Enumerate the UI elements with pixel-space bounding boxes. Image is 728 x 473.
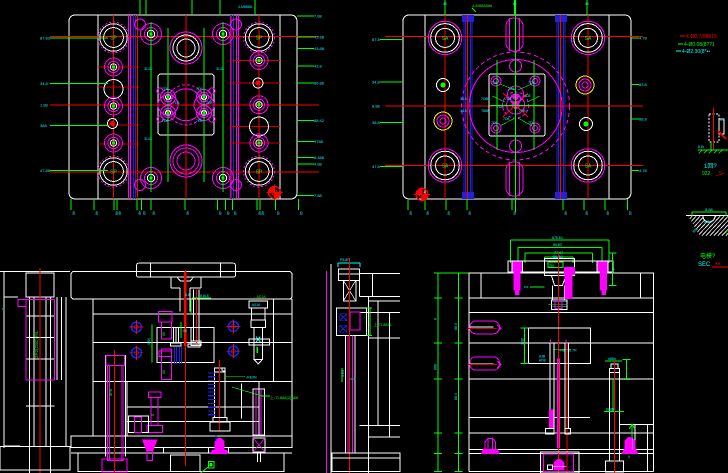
svg-text:4-Ø0.7(88915: 4-Ø0.7(88915 xyxy=(686,34,717,40)
svg-text:48: 48 xyxy=(233,211,237,215)
svg-text:8.8•: 8.8• xyxy=(698,145,705,149)
svg-text:4.8: 4.8 xyxy=(720,118,725,122)
svg-text:4.8X: 4.8X xyxy=(341,369,345,377)
svg-text:7D8: 7D8 xyxy=(505,97,511,101)
svg-text:48: 48 xyxy=(152,211,156,215)
svg-text:48: 48 xyxy=(142,211,146,215)
svg-text:7.88: 7.88 xyxy=(314,193,323,198)
svg-text:←AD1A: ←AD1A xyxy=(253,295,266,299)
svg-text:3L43: 3L43 xyxy=(144,67,152,71)
svg-text:48: 48 xyxy=(261,211,265,215)
svg-text:7D8: 7D8 xyxy=(524,94,530,98)
svg-text:7D8: 7D8 xyxy=(173,101,179,105)
svg-text:47.8: 47.8 xyxy=(372,164,381,169)
svg-text:83.8: 83.8 xyxy=(639,82,648,87)
svg-text:8: 8 xyxy=(434,318,438,320)
svg-text:48: 48 xyxy=(426,211,430,215)
svg-text:7D8: 7D8 xyxy=(196,119,202,123)
svg-text:SA: SA xyxy=(442,164,449,170)
svg-text:88: 88 xyxy=(162,332,166,336)
svg-text:48: 48 xyxy=(117,211,121,215)
svg-text:P5.8P: P5.8P xyxy=(340,258,350,262)
svg-text:48: 48 xyxy=(186,211,190,215)
svg-text:88: 88 xyxy=(183,329,187,333)
svg-text:7D8: 7D8 xyxy=(162,119,168,123)
svg-text:43.8: 43.8 xyxy=(314,64,323,69)
svg-text:4-M888888: 4-M888888 xyxy=(472,3,493,8)
svg-text:7D8: 7D8 xyxy=(503,117,509,121)
svg-text:AD8: AD8 xyxy=(539,359,546,363)
svg-text:87.83: 87.83 xyxy=(40,36,51,41)
svg-text:SA: SA xyxy=(585,36,592,42)
svg-text:1.88: 1.88 xyxy=(40,102,49,107)
svg-text:3L43: 3L43 xyxy=(216,67,224,71)
svg-text:48: 48 xyxy=(513,2,517,6)
svg-text:2P2(2SC)99L: 2P2(2SC)99L xyxy=(34,330,39,358)
svg-text:48: 48 xyxy=(409,211,413,215)
svg-text:上-7L888L: 上-7L888L xyxy=(373,321,392,327)
svg-text:85.83: 85.83 xyxy=(553,243,562,247)
svg-text:SEC: SEC xyxy=(698,262,711,268)
svg-text:87.8: 87.8 xyxy=(372,37,381,42)
svg-text:48: 48 xyxy=(276,211,280,215)
svg-text:7D8: 7D8 xyxy=(519,109,525,113)
svg-text:SP: SP xyxy=(256,170,263,176)
svg-text:8.488: 8.488 xyxy=(314,155,325,160)
svg-text:SA: SA xyxy=(585,164,592,170)
svg-text:48: 48 xyxy=(218,211,222,215)
svg-text:88.8: 88.8 xyxy=(639,117,648,122)
svg-text:9788: 9788 xyxy=(314,139,324,144)
svg-text:8: 8 xyxy=(612,268,616,270)
svg-text:A01A: A01A xyxy=(252,303,261,307)
svg-text:88: 88 xyxy=(162,370,166,374)
svg-text:4.78: 4.78 xyxy=(639,168,648,173)
svg-text:43.88: 43.88 xyxy=(314,35,325,40)
svg-text:48: 48 xyxy=(585,211,589,215)
svg-text:255: 255 xyxy=(549,264,554,268)
svg-text:7D8: 7D8 xyxy=(491,81,497,85)
svg-text:48: 48 xyxy=(137,211,141,215)
svg-text:7D8: 7D8 xyxy=(162,87,168,91)
svg-text:8P8: 8P8 xyxy=(108,388,113,396)
svg-text:34.8: 34.8 xyxy=(40,81,49,86)
svg-text:4.88: 4.88 xyxy=(314,161,323,166)
svg-text:48: 48 xyxy=(71,211,75,215)
svg-text:47.88: 47.88 xyxy=(40,168,51,173)
svg-text:48: 48 xyxy=(94,211,98,215)
svg-text:88 0: 88 0 xyxy=(454,323,458,330)
svg-text:1回?: 1回? xyxy=(704,163,717,170)
svg-text:4-Ø2.30(8*••: 4-Ø2.30(8*•• xyxy=(682,49,710,55)
svg-text:875.83: 875.83 xyxy=(552,236,563,240)
svg-text:电模?: 电模? xyxy=(700,252,716,260)
svg-text:34.8: 34.8 xyxy=(460,97,467,101)
svg-text:888: 888 xyxy=(434,364,438,370)
svg-text:48: 48 xyxy=(226,211,230,215)
svg-text:SP: SP xyxy=(110,170,117,176)
svg-text:#88#: #88# xyxy=(608,357,616,361)
svg-text:4-Ø0.08(8??1: 4-Ø0.08(8??1 xyxy=(684,42,715,48)
svg-text:480|: 480| xyxy=(147,338,151,345)
svg-text:T888: T888 xyxy=(481,109,489,113)
svg-text:4.78: 4.78 xyxy=(639,36,648,41)
svg-text:3L43: 3L43 xyxy=(144,137,152,141)
svg-text:922: 922 xyxy=(702,171,711,177)
svg-text:7D88: 7D88 xyxy=(481,97,489,101)
svg-text:8•8.8: 8•8.8 xyxy=(704,220,712,224)
svg-text:48: 48 xyxy=(606,211,610,215)
svg-text:上-7L888(2)888: 上-7L888(2)888 xyxy=(270,394,299,400)
svg-text:-RE0N: -RE0N xyxy=(246,376,257,380)
svg-text:8.8: 8.8 xyxy=(185,293,190,297)
svg-text:48: 48 xyxy=(443,2,447,6)
svg-text:388: 388 xyxy=(40,123,47,128)
svg-text:43.88: 43.88 xyxy=(314,46,325,51)
svg-text:SP: SP xyxy=(110,36,117,42)
svg-text:48: 48 xyxy=(468,211,472,215)
svg-text:86.88: 86.88 xyxy=(314,81,325,86)
svg-text:4-M8888: 4-M8888 xyxy=(238,5,252,9)
svg-text:88.42: 88.42 xyxy=(314,118,325,123)
svg-text:34.8: 34.8 xyxy=(460,109,467,113)
svg-text:7D8: 7D8 xyxy=(196,87,202,91)
svg-text:48: 48 xyxy=(299,211,303,215)
svg-text:8.8L8: 8.8L8 xyxy=(200,294,209,298)
svg-text:7D8: 7D8 xyxy=(491,121,497,125)
svg-text:8: 8 xyxy=(151,414,155,416)
svg-text:48: 48 xyxy=(585,2,589,6)
svg-text:8.88: 8.88 xyxy=(372,104,381,109)
svg-text:8: 8 xyxy=(628,455,630,459)
svg-text:48: 48 xyxy=(513,211,517,215)
svg-text:38|8: 38|8 xyxy=(521,338,525,345)
svg-text:88 4: 88 4 xyxy=(454,393,458,400)
svg-text:38.8: 38.8 xyxy=(372,120,381,125)
svg-text:SA: SA xyxy=(442,36,449,42)
svg-text:8.88: 8.88 xyxy=(705,207,714,212)
svg-text:•L••: •L•• xyxy=(350,377,356,381)
svg-text:8.8: 8.8 xyxy=(524,285,529,289)
svg-text:7D8: 7D8 xyxy=(206,101,212,105)
svg-text:SP: SP xyxy=(256,36,263,42)
svg-text:_S•: _S• xyxy=(715,171,724,177)
svg-text:34.8: 34.8 xyxy=(372,79,381,84)
svg-text:7.88: 7.88 xyxy=(314,13,323,18)
svg-text:48: 48 xyxy=(564,211,568,215)
svg-text:48: 48 xyxy=(447,211,451,215)
svg-text:48: 48 xyxy=(628,211,632,215)
